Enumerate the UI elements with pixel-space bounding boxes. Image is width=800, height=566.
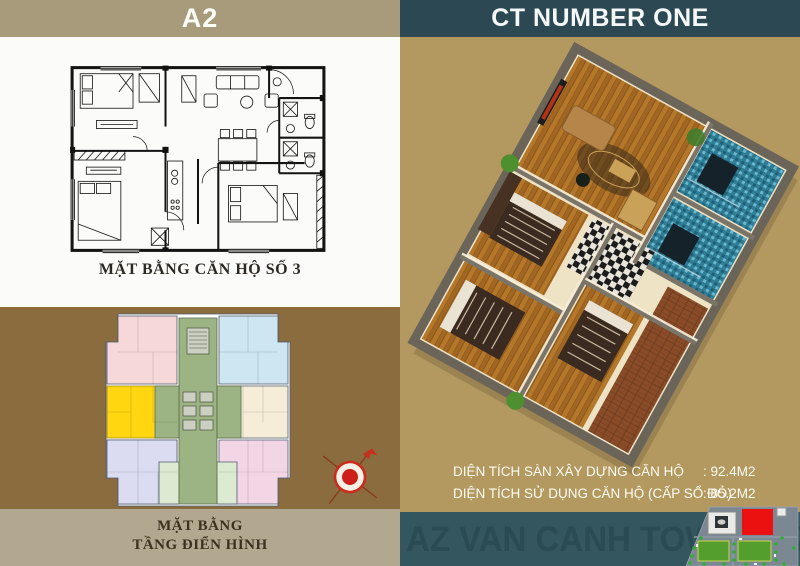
apartment-top-left [107,316,177,384]
typical-floor-caption-line2: TẦNG ĐIỂN HÌNH [0,536,400,555]
left-panel: A2 [0,0,400,566]
red-building [742,509,773,535]
project-title: CT NUMBER ONE [491,4,709,33]
area-row-built: DIỆN TÍCH SÀN XÂY DỰNG CĂN HỘ : 92.4M2 [453,461,798,483]
unit-code-title: A2 [182,3,219,34]
render-section: DIỆN TÍCH SÀN XÂY DỰNG CĂN HỘ : 92.4M2 D… [400,37,800,512]
area-label: DIỆN TÍCH SỬ DỤNG CĂN HỘ (CẤP SỔ ĐỎ) [453,483,703,505]
area-label: DIỆN TÍCH SÀN XÂY DỰNG CĂN HỘ [453,461,703,483]
typical-floor-section [0,307,400,509]
park-left [698,541,729,561]
brochure-page: A2 [0,0,800,566]
apartment-top-right [219,316,288,384]
park-right [738,541,771,561]
area-value: : 92.4M2 [703,461,756,483]
right-panel: CT NUMBER ONE [400,0,800,566]
area-info: DIỆN TÍCH SÀN XÂY DỰNG CĂN HỘ : 92.4M2 D… [453,461,798,505]
typical-floor-caption-line1: MẶT BẰNG [0,517,400,536]
compass-icon [320,437,380,505]
area-row-usable: DIỆN TÍCH SỬ DỤNG CĂN HỘ (CẤP SỔ ĐỎ) : 8… [453,483,798,505]
typical-floor-caption: MẶT BẰNG TẦNG ĐIỂN HÌNH [0,509,400,566]
unit-floor-plan-drawing [66,61,330,257]
typical-floor-plan-drawing [92,312,304,508]
site-map-thumbnail [684,504,800,566]
area-value: : 85.2M2 [703,483,756,505]
apartment-3d-render [400,37,800,507]
left-header: A2 [0,0,400,37]
unit-plan-section: MẶT BẰNG CĂN HỘ SỐ 3 [0,37,400,307]
unit-plan-caption: MẶT BẰNG CĂN HỘ SỐ 3 [0,261,400,279]
right-header: CT NUMBER ONE [400,0,800,37]
